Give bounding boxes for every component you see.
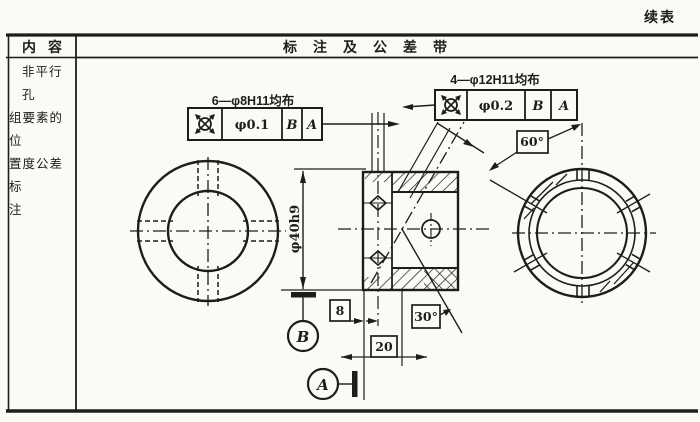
continued-table-label: 续表: [644, 7, 676, 27]
header-annotation-column: 标注及公差带: [255, 37, 475, 57]
right-end-view: [490, 123, 656, 307]
fcf-left-tolerance: φ0.1: [235, 118, 269, 133]
fcf-right-datum-a: A: [557, 99, 569, 114]
row-label-line: 非平行孔: [9, 61, 75, 107]
datum-a-symbol: [308, 369, 358, 399]
fcf-right-pattern-label: 4—φ12H11均布: [450, 72, 540, 87]
header-content-column: 内容: [8, 37, 76, 57]
datum-a-letter: A: [315, 376, 329, 394]
outer-diameter-label: φ40h9: [288, 205, 303, 253]
dim-60deg-value: 60°: [520, 134, 544, 149]
position-symbol-icon: [441, 95, 461, 115]
fcf-left-pattern-label: 6—φ8H11均布: [212, 93, 295, 108]
left-end-view: [130, 157, 286, 306]
fcf-right-datum-b: B: [532, 99, 544, 114]
position-symbol-icon: [195, 114, 215, 134]
fcf-left-datum-a: A: [305, 118, 317, 133]
scanned-standard-page: φ40h9 B 6—φ8H11均布 φ0.1 B A: [0, 0, 700, 422]
row-label-line: 组要素的位: [9, 107, 75, 153]
row-label-line: 注: [9, 199, 75, 222]
row-label-line: 置度公差标: [9, 153, 75, 199]
datum-b-letter: B: [296, 328, 310, 346]
fcf-right-tolerance: φ0.2: [479, 99, 513, 114]
row-label: 非平行孔 组要素的位 置度公差标 注: [9, 61, 75, 222]
dim-8-value: 8: [336, 303, 345, 318]
fcf-left-datum-b: B: [286, 118, 298, 133]
dim-20-value: 20: [375, 339, 393, 354]
dim-30deg-value: 30°: [414, 309, 438, 324]
technical-drawing: φ40h9 B 6—φ8H11均布 φ0.1 B A: [0, 0, 700, 422]
